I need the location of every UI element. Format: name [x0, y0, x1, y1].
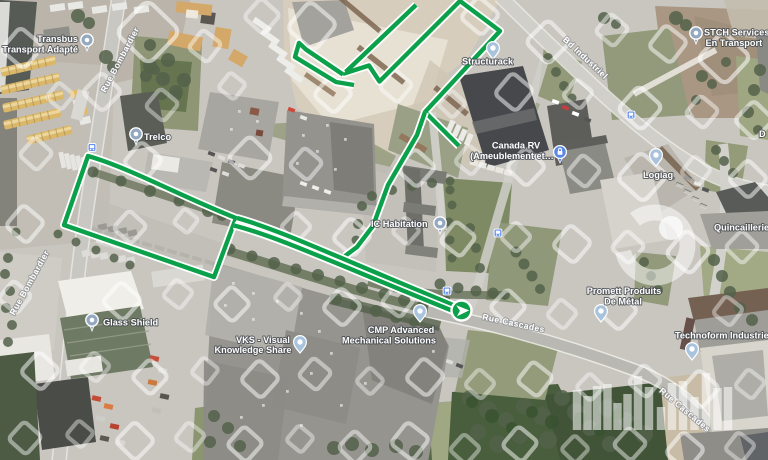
svg-text:Quincaillerie: Quincaillerie	[714, 223, 768, 233]
svg-text:Technoform Industries: Technoform Industries	[675, 331, 768, 341]
svg-text:IC Habitation: IC Habitation	[371, 219, 428, 229]
svg-text:Mechanical Solutions: Mechanical Solutions	[342, 336, 436, 346]
svg-text:De Métal: De Métal	[604, 297, 642, 307]
svg-text:Logiag: Logiag	[643, 170, 673, 180]
svg-text:VKS - Visual: VKS - Visual	[236, 335, 290, 345]
svg-text:Structurack: Structurack	[462, 57, 514, 67]
svg-text:CMP Advanced: CMP Advanced	[368, 325, 434, 335]
svg-text:En Transport: En Transport	[706, 38, 763, 48]
svg-text:Glass Shield: Glass Shield	[103, 318, 158, 328]
svg-text:(Ameublement et…: (Ameublement et…	[470, 151, 554, 161]
svg-text:Canada RV: Canada RV	[492, 141, 541, 151]
svg-text:D: D	[759, 129, 766, 139]
svg-text:Promett Produits: Promett Produits	[587, 286, 662, 296]
svg-text:STCH Services: STCH Services	[704, 28, 768, 38]
svg-text:Transbus: Transbus	[37, 34, 78, 44]
svg-text:Knowledge Share: Knowledge Share	[214, 345, 291, 355]
svg-text:Trelco: Trelco	[144, 132, 171, 142]
svg-text:Transport Adapté: Transport Adapté	[2, 45, 78, 55]
